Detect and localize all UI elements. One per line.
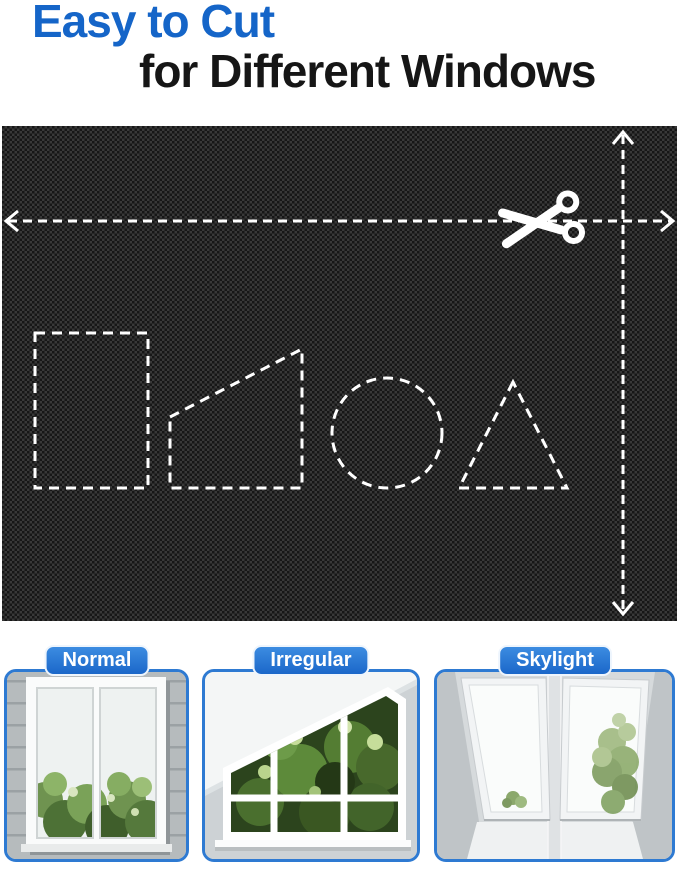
page-title-accent: Easy to Cut	[32, 0, 274, 48]
skylight-window-photo	[437, 672, 672, 859]
window-type-label-skylight: Skylight	[498, 645, 612, 676]
cut-shape-trapezoid	[170, 349, 302, 488]
page-title-main: for Different Windows	[139, 44, 595, 98]
cut-shape-triangle	[459, 382, 567, 488]
product-infographic: Easy to Cut for Different Windows	[0, 0, 679, 874]
window-type-label-irregular: Irregular	[252, 645, 369, 676]
cut-shape-rectangle	[35, 333, 148, 488]
irregular-window-photo	[205, 672, 417, 859]
window-type-card-irregular	[202, 669, 420, 862]
window-type-card-normal	[4, 669, 189, 862]
double-arrow-vertical-icon	[613, 132, 633, 614]
normal-window-photo	[7, 672, 186, 859]
cut-guides-overlay	[2, 126, 677, 621]
cut-shape-circle	[332, 378, 442, 488]
window-type-card-skylight	[434, 669, 675, 862]
window-type-label-normal: Normal	[45, 645, 150, 676]
fabric-panel	[2, 126, 677, 621]
